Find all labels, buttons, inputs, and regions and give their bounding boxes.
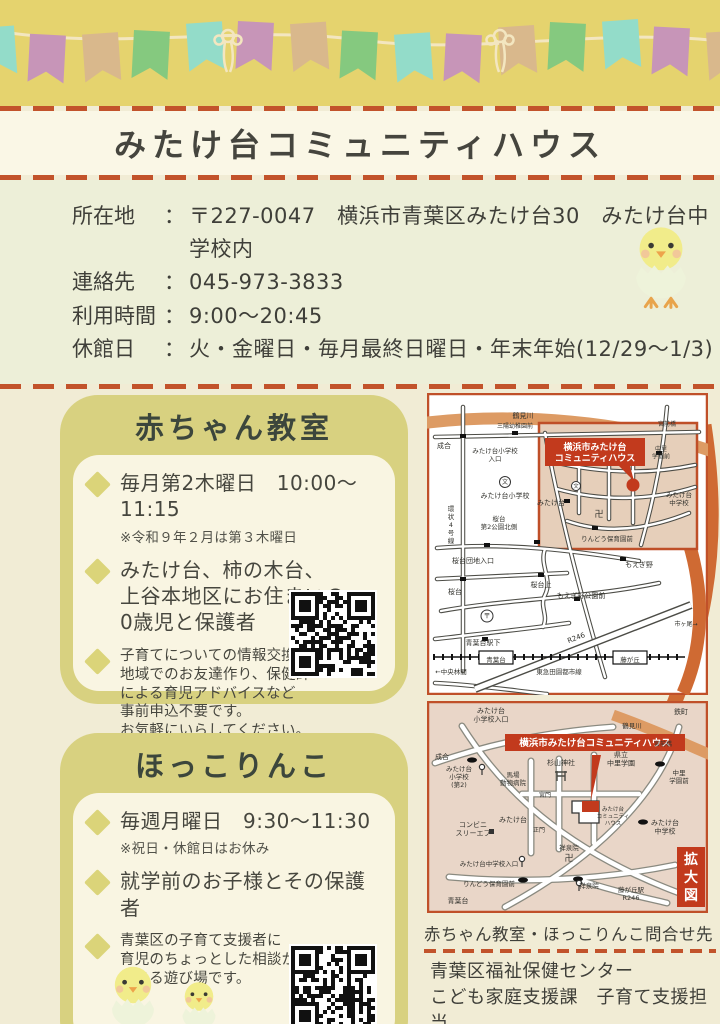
- map-label: りんどう保育園前: [463, 879, 515, 888]
- diamond-icon: [84, 869, 111, 896]
- bullet-note: ※令和９年２月は第３木曜日: [120, 526, 383, 546]
- map-label: 宮門: [539, 791, 551, 799]
- map-label: もえぎ野: [625, 560, 653, 569]
- info-row: 所在地：〒227-0047 横浜市青葉区みたけ台30 みたけ台中学校内: [72, 200, 720, 266]
- card-body: 毎月第2木曜日 10:00～11:15※令和９年２月は第３木曜日みたけ台、柿の木…: [73, 455, 395, 691]
- map-label: みたけ台中学校: [666, 490, 692, 507]
- wide-area-map: 横浜市みたけ台コミュニティハウス 鶴見川宮前橋三陽幼稚園前成合みたけ台小学校入口…: [427, 393, 708, 695]
- map-label: みたけ台小学校: [481, 491, 530, 500]
- map-label: 文: [502, 478, 508, 486]
- map-label: 文: [573, 482, 579, 490]
- page-title: みたけ台コミュニティハウス: [114, 120, 606, 166]
- map-label: みたけ台小学校入口: [474, 706, 509, 724]
- pennant-flag: [82, 32, 121, 82]
- qr-code: [289, 590, 377, 678]
- qr-code: [289, 944, 377, 1024]
- flyer-page: みたけ台コミュニティハウス 所在地：〒227-0047 横浜市青葉区みたけ台30…: [0, 0, 720, 1024]
- info-row: 休館日：火・金曜日・毎月最終日曜日・年末年始(12/29～1/3): [72, 333, 720, 366]
- enlarged-map: 横浜市みたけ台コミュニティハウス 拡大図 みたけ台小学校入口鶴見川鉄町宮前橋成合…: [427, 701, 708, 913]
- map-label: 卍: [564, 853, 573, 864]
- pennant-flag: [602, 19, 641, 69]
- diamond-icon: [84, 648, 111, 675]
- svg-text:横浜市みたけ台: 横浜市みたけ台: [563, 441, 626, 453]
- landmark-label: 横浜市みたけ台コミュニティハウス: [519, 737, 670, 749]
- map-label: 桜台: [448, 587, 462, 596]
- card-body: 毎週月曜日 9:30～11:30※祝日・休館日はお休み就学前のお子様とその保護者…: [73, 793, 395, 1024]
- map-label: 市ヶ尾→: [674, 620, 697, 628]
- chick-icon: [177, 980, 221, 1024]
- main-content: 横浜市みたけ台コミュニティハウス 鶴見川宮前橋三陽幼稚園前成合みたけ台小学校入口…: [0, 389, 720, 1024]
- map-label: 鉄町: [674, 707, 688, 716]
- diamond-icon: [84, 471, 111, 498]
- title-band: みたけ台コミュニティハウス: [0, 111, 720, 175]
- map-label: みたけ台: [537, 498, 565, 507]
- bullet-text: 子育てについての情報交換や地域でのお友達作り、保健師による育児アドバイスなど事前…: [120, 647, 311, 741]
- map-label: 正門: [533, 827, 545, 834]
- location-dot-icon: [627, 478, 640, 491]
- svg-text:図: 図: [684, 888, 698, 904]
- pennant-flag: [706, 30, 720, 80]
- map-label: 東急田園都市線: [536, 667, 582, 676]
- landmark-label: 横浜市みたけ台コミュニティハウス: [555, 441, 635, 464]
- banner: [0, 0, 720, 106]
- map-label: みたけ台: [499, 815, 527, 824]
- event-card-hokkorinko: ほっこりんこ 毎週月曜日 9:30～11:30※祝日・休館日はお休み就学前のお子…: [60, 733, 408, 1024]
- map-label: 祥泉院: [579, 881, 599, 890]
- pennant-flag: [339, 31, 377, 81]
- info-rows: 所在地：〒227-0047 横浜市青葉区みたけ台30 みたけ台中学校内連絡先：0…: [72, 200, 720, 366]
- enlarge-badge-text: 拡大図: [684, 851, 698, 904]
- bullet-item: 毎週月曜日 9:30～11:30※祝日・休館日はお休み: [81, 808, 383, 857]
- pennant-flag: [235, 21, 273, 71]
- map-label: 宮前橋: [654, 740, 672, 748]
- contact-line: 青葉区福祉保健センター: [430, 959, 716, 985]
- pennant-flag: [394, 32, 433, 82]
- map-label: 卍: [594, 509, 603, 520]
- svg-text:コミュニティハウス: コミュニティハウス: [555, 453, 635, 464]
- pennant-flag: [651, 26, 689, 76]
- map-label: 鶴見川: [622, 721, 642, 730]
- diamond-icon: [84, 809, 111, 836]
- map-label: 藤が丘: [620, 655, 640, 664]
- map-label: 祥泉院: [559, 843, 579, 852]
- map-label: 桜台上: [531, 580, 552, 589]
- diamond-icon: [84, 558, 111, 585]
- dashed-divider: [424, 949, 716, 953]
- map-label: 青葉台: [486, 655, 506, 664]
- chick-icons: [105, 964, 221, 1024]
- map-label: りんどう保育園前: [581, 534, 633, 543]
- map-label: 〒: [484, 612, 491, 620]
- bullet-text: 毎週月曜日 9:30～11:30※祝日・休館日はお休み: [120, 808, 371, 857]
- pennant-flag: [186, 21, 225, 71]
- bullet-item: 就学前のお子様とその保護者: [81, 868, 383, 921]
- svg-text:横浜市みたけ台コミュニティハウス: 横浜市みたけ台コミュニティハウス: [519, 737, 670, 749]
- pennant-flag: [27, 34, 65, 84]
- map-label: 鶴見川: [513, 411, 534, 420]
- pennant-flag: [290, 22, 329, 72]
- map-label: みたけ台中学校入口: [460, 859, 519, 868]
- pennant-flag: [443, 33, 481, 83]
- svg-text:拡: 拡: [684, 851, 698, 868]
- bullet-note: ※祝日・休館日はお休み: [120, 837, 371, 857]
- bullet-text: 毎月第2木曜日 10:00～11:15※令和９年２月は第３木曜日: [120, 470, 383, 546]
- info-row: 連絡先：045-973-3833: [72, 266, 720, 299]
- garland-flags: [0, 19, 720, 83]
- chick-icon: [105, 964, 161, 1024]
- map-label: 成合: [437, 441, 451, 450]
- pennant-flag: [547, 22, 585, 72]
- map-label: 杉山神社: [547, 758, 575, 767]
- map-label: 三陽幼稚園前: [497, 422, 533, 430]
- bullet-item: 毎月第2木曜日 10:00～11:15※令和９年２月は第３木曜日: [81, 470, 383, 546]
- map-label: コンビニスリーエフ: [456, 820, 491, 838]
- map-label: ←中央林間: [435, 667, 466, 676]
- diamond-icon: [84, 933, 111, 960]
- chick-icon: [628, 224, 694, 314]
- map-label: 青葉台: [448, 896, 469, 905]
- contact-line: こども家庭支援課 子育て支援担当: [430, 985, 716, 1024]
- map-label: もえぎ野公園前: [557, 591, 606, 600]
- contact-heading: 赤ちゃん教室・ほっこりんこ問合せ先: [424, 921, 716, 945]
- info-row: 利用時間：9:00～20:45: [72, 300, 720, 333]
- map-label: 成合: [435, 752, 449, 761]
- map-label: 桜台団地入口: [452, 556, 494, 565]
- map-label: 宮前橋: [658, 420, 676, 428]
- contact-section: 赤ちゃん教室・ほっこりんこ問合せ先 青葉区福祉保健センター こども家庭支援課 子…: [424, 921, 716, 1024]
- info-section: 所在地：〒227-0047 横浜市青葉区みたけ台30 みたけ台中学校内連絡先：0…: [0, 180, 720, 384]
- card-title: 赤ちゃん教室: [73, 395, 395, 455]
- card-title: ほっこりんこ: [73, 733, 395, 793]
- garland: [0, 0, 720, 106]
- pennant-flag: [131, 30, 169, 80]
- event-card-akachan: 赤ちゃん教室 毎月第2木曜日 10:00～11:15※令和９年２月は第３木曜日み…: [60, 395, 408, 704]
- map-label: 青葉台駅下: [466, 638, 501, 647]
- svg-text:大: 大: [684, 869, 698, 886]
- map-label: みたけ台中学校: [651, 818, 679, 836]
- bullet-text: 就学前のお子様とその保護者: [120, 868, 383, 921]
